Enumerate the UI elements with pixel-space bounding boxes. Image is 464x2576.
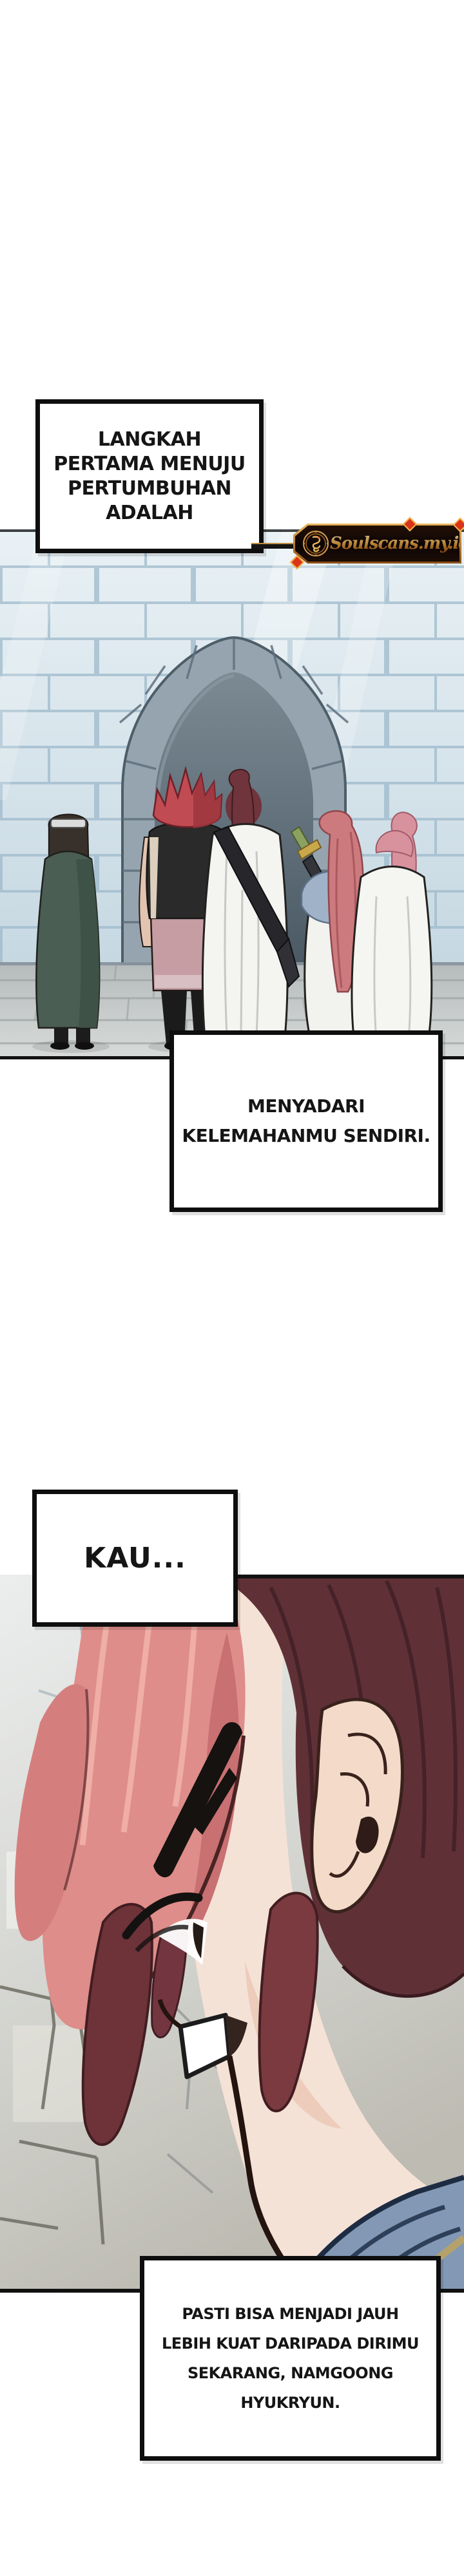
manhwa-page[interactable]: LANGKAH PERTAMA MENUJU PERTUMBUHAN ADALA…: [0, 0, 464, 2576]
dragon-seal-icon: [302, 529, 330, 558]
watermark-tail-line: [251, 543, 295, 549]
watermark-body: Soulscans.my.id: [295, 526, 459, 562]
narration-box-stronger: PASTI BISA MENJADI JAUH LEBIH KUAT DARIP…: [140, 2256, 441, 2461]
narration-box-weakness: MENYADARI KELEMAHANMU SENDIRI.: [169, 1030, 443, 1212]
scanlation-watermark: Soulscans.my.id: [293, 524, 461, 563]
panel-closeup-grin: [0, 1575, 464, 2293]
watermark-text: Soulscans.my.id: [330, 534, 464, 553]
narration-box-growth: LANGKAH PERTAMA MENUJU PERTUMBUHAN ADALA…: [35, 399, 264, 553]
narration-box-kau: KAU...: [32, 1490, 238, 1627]
panel-gate-scene: [0, 529, 464, 1059]
